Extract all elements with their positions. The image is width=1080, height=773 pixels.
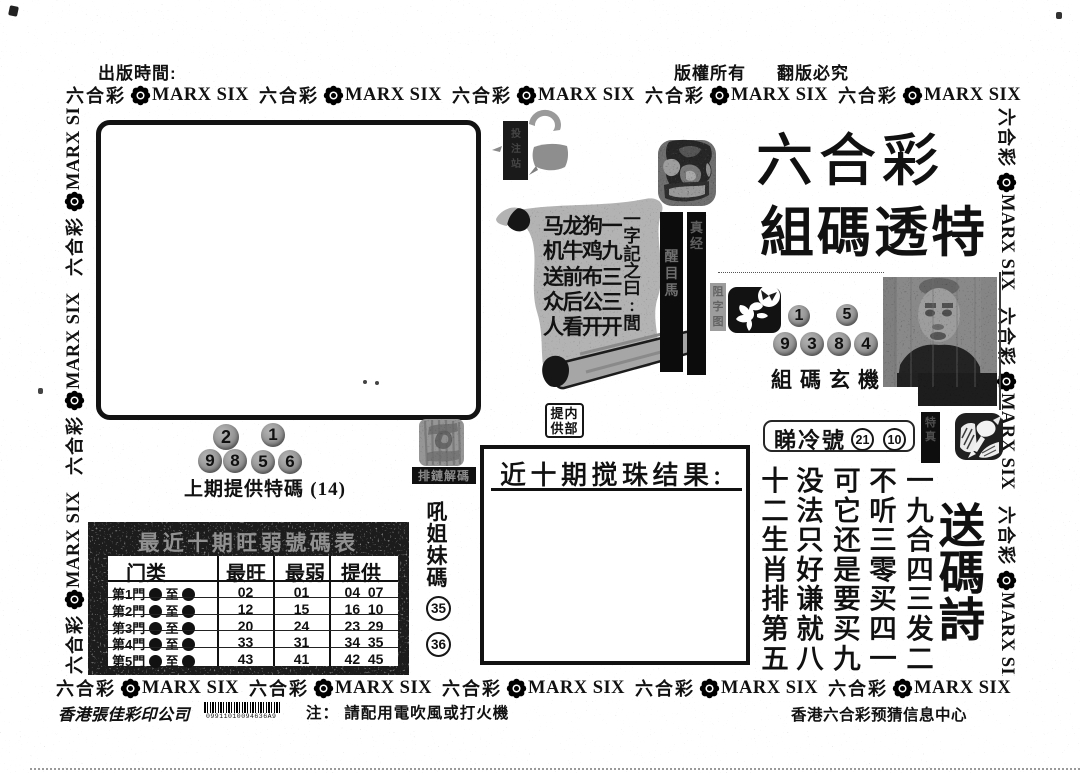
svg-text:站: 站 [511, 157, 521, 170]
svg-text:注: 注 [511, 142, 521, 155]
svg-text:投: 投 [511, 127, 521, 140]
